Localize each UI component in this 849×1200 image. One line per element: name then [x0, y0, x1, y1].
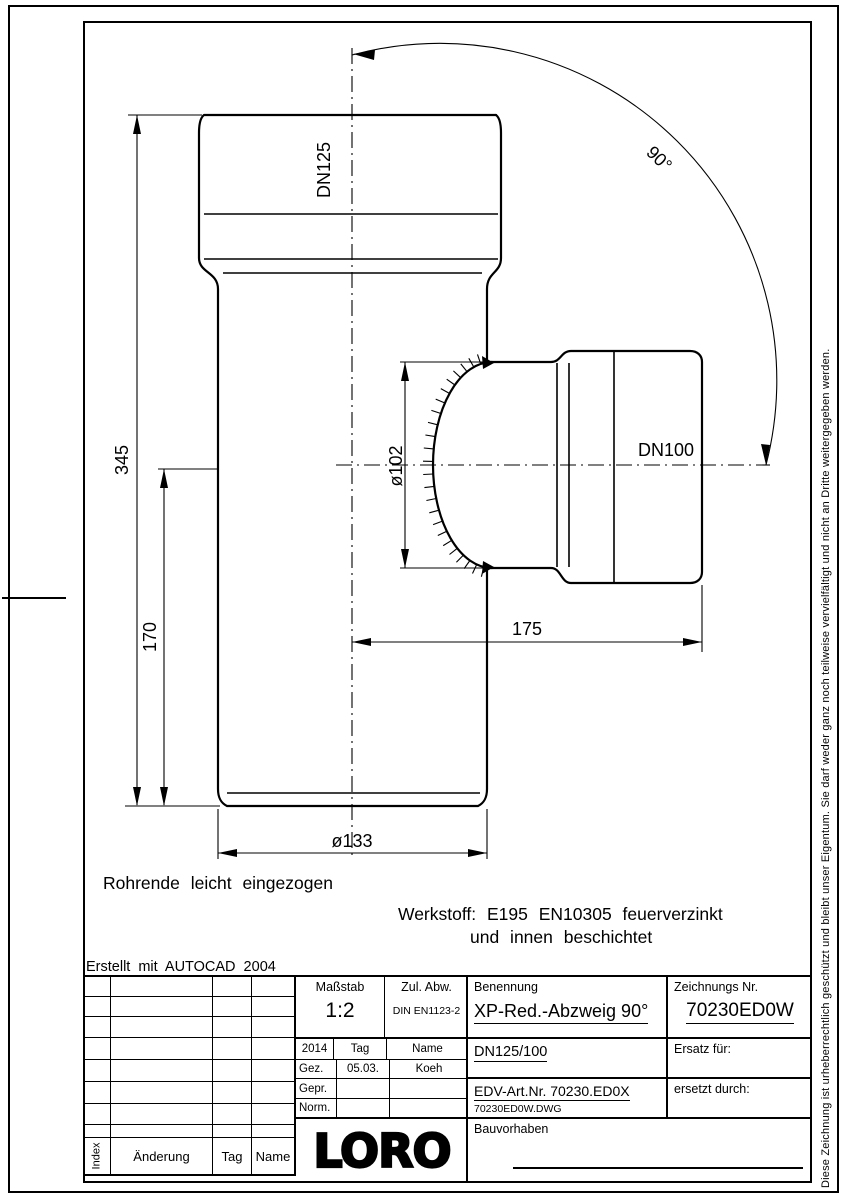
- zul-abw-label: Zul. Abw.: [385, 977, 468, 994]
- drawing-sheet: Diese Zeichnung ist urheberrechtlich ges…: [0, 0, 849, 1200]
- revision-col-tag: Tag: [213, 1138, 252, 1174]
- revision-table: Index Änderung Tag Name: [83, 977, 296, 1176]
- copyright-note-vertical: Diese Zeichnung ist urheberrechtlich ges…: [820, 26, 832, 1188]
- loro-logo-text: LORO: [313, 1125, 450, 1177]
- variant-value: DN125/100: [474, 1044, 547, 1062]
- note-pipe-end: Rohrende leicht eingezogen: [103, 873, 333, 893]
- pipe-outline: [199, 115, 702, 806]
- revision-row: [83, 1060, 294, 1082]
- revision-row: [83, 1125, 294, 1138]
- gepr-row: Gepr.: [296, 1079, 468, 1099]
- gez-name: Koeh: [390, 1060, 468, 1078]
- name-header-cell: Name: [387, 1039, 468, 1059]
- revision-row: [83, 1038, 294, 1060]
- revision-col-aenderung: Änderung: [111, 1138, 213, 1174]
- bauvorhaben-label: Bauvorhaben: [474, 1122, 806, 1136]
- label-170: 170: [140, 622, 160, 652]
- revision-col-index: Index: [90, 1143, 102, 1170]
- title-block-right: Benennung XP-Red.-Abzweig 90° Zeichnungs…: [468, 977, 812, 1183]
- zeichnungs-value: 70230ED0W: [686, 1000, 794, 1024]
- benennung-label: Benennung: [474, 980, 660, 994]
- masstab-cell: Maßstab 1:2: [296, 977, 385, 1039]
- logo-cell: LORO: [296, 1119, 468, 1183]
- tag-header-cell: Tag: [334, 1039, 387, 1059]
- revision-row: [83, 1104, 294, 1125]
- label-90deg: 90°: [642, 142, 675, 175]
- zul-abw-value: DIN EN1123-2: [385, 994, 468, 1017]
- note-created-with: Erstellt mit AUTOCAD 2004: [86, 959, 276, 973]
- loro-logo: LORO: [303, 1125, 461, 1177]
- title-block-middle: Maßstab 1:2 Zul. Abw. DIN EN1123-2 2014 …: [296, 977, 468, 1183]
- norm-row: Norm.: [296, 1099, 468, 1119]
- ersatz-label: Ersatz für:: [674, 1042, 806, 1056]
- edv-cell: EDV-Art.Nr. 70230.ED0X 70230ED0W.DWG: [468, 1079, 668, 1119]
- ersetzt-label: ersetzt durch:: [674, 1082, 806, 1096]
- branch-outline: [490, 351, 702, 583]
- label-175: 175: [512, 619, 542, 639]
- bauvorhaben-fill-line: [513, 1167, 803, 1169]
- gepr-label: Gepr.: [296, 1079, 337, 1098]
- norm-label: Norm.: [296, 1099, 337, 1117]
- approval-header-row: 2014 Tag Name: [296, 1039, 468, 1060]
- masstab-label: Maßstab: [296, 977, 384, 994]
- zeichnungs-nr-cell: Zeichnungs Nr. 70230ED0W: [668, 977, 812, 1039]
- label-dia133: ø133: [331, 831, 372, 851]
- ersetzt-cell: ersetzt durch:: [668, 1079, 812, 1119]
- revision-header-row: Index Änderung Tag Name: [83, 1138, 294, 1174]
- variant-cell: DN125/100: [468, 1039, 668, 1079]
- label-dn100: DN100: [638, 440, 694, 460]
- benennung-cell: Benennung XP-Red.-Abzweig 90°: [468, 977, 668, 1039]
- revision-row: [83, 1017, 294, 1038]
- benennung-value: XP-Red.-Abzweig 90°: [474, 1001, 648, 1024]
- gez-tag: 05.03.: [337, 1060, 390, 1078]
- zul-abw-cell: Zul. Abw. DIN EN1123-2: [385, 977, 468, 1039]
- bead-lines: [204, 214, 614, 793]
- bauvorhaben-cell: Bauvorhaben: [468, 1119, 812, 1183]
- label-dia102: ø102: [386, 445, 406, 486]
- gez-label: Gez.: [296, 1060, 337, 1078]
- title-block: Index Änderung Tag Name Maßstab 1:2 Zul.…: [83, 975, 812, 1183]
- revision-row: [83, 977, 294, 997]
- note-material-2: und innen beschichtet: [470, 927, 652, 947]
- drawing-notes: Rohrende leicht eingezogen Werkstoff: E1…: [86, 873, 723, 973]
- left-center-mark: [2, 597, 66, 599]
- zeichnungs-label: Zeichnungs Nr.: [674, 980, 806, 994]
- masstab-value: 1:2: [296, 994, 384, 1023]
- label-345: 345: [112, 445, 132, 475]
- gez-row: Gez. 05.03. Koeh: [296, 1060, 468, 1079]
- dwg-file-value: 70230ED0W.DWG: [474, 1103, 660, 1115]
- revision-row: [83, 1082, 294, 1104]
- year-cell: 2014: [296, 1039, 334, 1059]
- label-dn125: DN125: [314, 142, 334, 198]
- note-material-1: Werkstoff: E195 EN10305 feuerverzinkt: [398, 904, 723, 924]
- edv-art-value: EDV-Art.Nr. 70230.ED0X: [474, 1083, 630, 1101]
- revision-col-name: Name: [252, 1138, 294, 1174]
- revision-row: [83, 997, 294, 1017]
- angle-arc: [352, 43, 777, 465]
- technical-drawing: DN125 DN100 ø102 ø133 345 170 175 90° Ro…: [83, 21, 812, 973]
- ersatz-cell: Ersatz für:: [668, 1039, 812, 1079]
